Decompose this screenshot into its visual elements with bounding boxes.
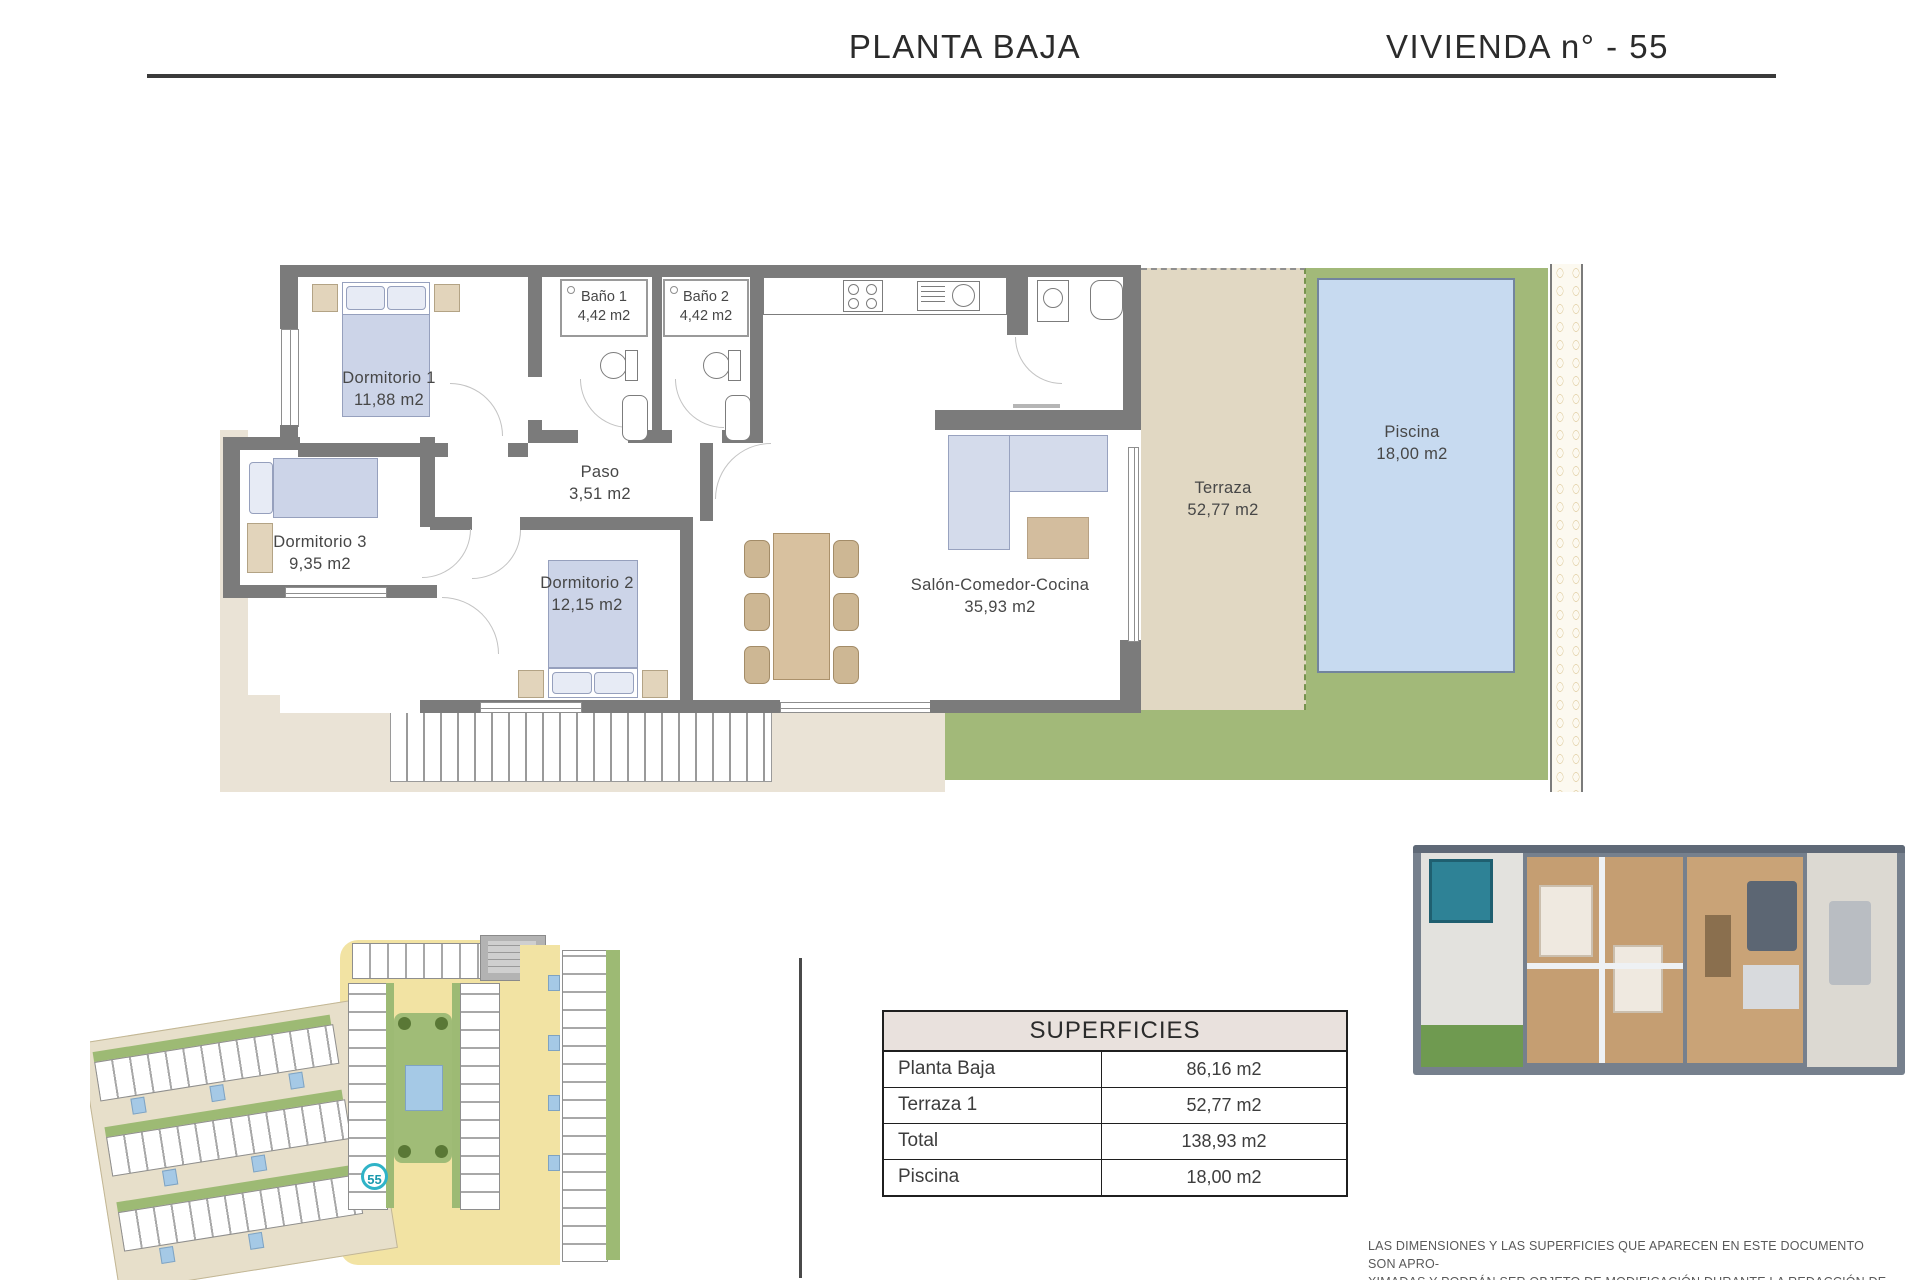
- room-name: Piscina: [1332, 422, 1492, 444]
- pillow: [346, 286, 385, 310]
- tree-icon: [435, 1017, 448, 1030]
- plan-sheet: PLANTA BAJA VIVIENDA n° - 55: [0, 0, 1920, 1280]
- pillow: [594, 672, 634, 694]
- row-label: Piscina: [884, 1160, 1102, 1195]
- chair: [744, 540, 770, 578]
- mini-pool: [548, 1155, 560, 1171]
- floor-plan: Dormitorio 1 11,88 m2 Baño 1 4,42 m2 Bañ…: [220, 257, 1585, 792]
- window-bedroom3: [285, 587, 387, 598]
- render-sofa: [1747, 881, 1797, 951]
- render-wall: [1599, 857, 1605, 1063]
- wall-bedroom2-top-b: [520, 517, 692, 530]
- sink-bowl-icon: [952, 284, 975, 307]
- tree-icon: [435, 1145, 448, 1158]
- burner-icon: [848, 298, 859, 309]
- disclaimer: LAS DIMENSIONES Y LAS SUPERFICIES QUE AP…: [1368, 1238, 1888, 1280]
- mini-pool: [548, 975, 560, 991]
- row-value: 18,00 m2: [1102, 1160, 1346, 1195]
- sliding-door-terrace: [1128, 447, 1139, 642]
- site-plan: 55: [90, 935, 805, 1280]
- housing-column: [562, 950, 608, 1262]
- toilet-icon: [600, 352, 627, 379]
- chair: [833, 646, 859, 684]
- chair: [744, 646, 770, 684]
- boiler-icon: [1090, 280, 1123, 320]
- sink-icon: [725, 395, 751, 441]
- burner-icon: [848, 284, 859, 295]
- vent-icon: [670, 286, 678, 294]
- mini-pool: [162, 1169, 178, 1187]
- pool-area: [1317, 278, 1515, 673]
- room-area: 18,00 m2: [1332, 444, 1492, 466]
- render-bed: [1539, 885, 1593, 957]
- wall-bedroom2-right: [680, 517, 693, 700]
- wall-exterior-top: [280, 265, 1141, 277]
- table-row: Terraza 1 52,77 m2: [884, 1088, 1346, 1124]
- chair: [833, 540, 859, 578]
- room-label-dormitorio2: Dormitorio 2 12,15 m2: [505, 573, 669, 617]
- row-value: 86,16 m2: [1102, 1052, 1346, 1087]
- pillow: [552, 672, 592, 694]
- room-name: Paso: [540, 462, 660, 484]
- mini-pool: [548, 1095, 560, 1111]
- render-bed: [1613, 945, 1663, 1013]
- room-area: 4,42 m2: [562, 307, 646, 326]
- garden-lawn: [945, 710, 1306, 780]
- housing-column: [460, 983, 500, 1210]
- room-area: 52,77 m2: [1150, 500, 1296, 522]
- drainer-lines: [921, 286, 945, 306]
- room-label-dormitorio3: Dormitorio 3 9,35 m2: [240, 532, 400, 576]
- section-divider: [799, 958, 802, 1278]
- toilet-tank-icon: [728, 350, 741, 381]
- room-label-dormitorio1: Dormitorio 1 11,88 m2: [309, 368, 469, 412]
- wall-bedroom1-bottom: [298, 443, 448, 457]
- sofa-l-leg: [948, 435, 1010, 550]
- shelf-line: [1013, 404, 1060, 408]
- room-label-paso: Paso 3,51 m2: [540, 462, 660, 506]
- surfaces-table: SUPERFICIES Planta Baja 86,16 m2 Terraza…: [882, 1010, 1348, 1197]
- mini-pool: [130, 1097, 146, 1115]
- render-dining-table: [1705, 915, 1731, 977]
- table-row: Planta Baja 86,16 m2: [884, 1052, 1346, 1088]
- pillow: [387, 286, 426, 310]
- row-label: Terraza 1: [884, 1088, 1102, 1123]
- unit-marker-55: 55: [361, 1163, 388, 1190]
- room-name: Terraza: [1150, 478, 1296, 500]
- nightstand: [642, 670, 668, 698]
- burner-icon: [866, 298, 877, 309]
- room-label-bano2: Baño 2 4,42 m2: [663, 279, 749, 337]
- mini-pool: [209, 1084, 225, 1102]
- garden-strip: [452, 983, 460, 1208]
- render-wall-top: [1413, 845, 1905, 853]
- wall-exterior-bottom-c: [930, 700, 1141, 713]
- room-label-salon: Salón-Comedor-Cocina 35,93 m2: [900, 575, 1100, 619]
- room-name: Dormitorio 2: [505, 573, 669, 595]
- page-title-right: VIVIENDA n° - 55: [1330, 28, 1725, 66]
- wall-exterior-bottom-b: [700, 700, 780, 713]
- rug: [1027, 517, 1089, 559]
- row-label: Total: [884, 1124, 1102, 1159]
- wall-bedroom3-left: [223, 437, 240, 598]
- pillow: [249, 462, 273, 514]
- nightstand: [434, 284, 460, 312]
- room-label-bano1: Baño 1 4,42 m2: [560, 279, 648, 337]
- render-wall: [1527, 963, 1683, 969]
- window-bedroom1: [281, 329, 299, 427]
- wall-bedroom1-bottom-stub: [508, 443, 528, 457]
- row-value: 52,77 m2: [1102, 1088, 1346, 1123]
- room-area: 4,42 m2: [665, 307, 747, 326]
- wall-bath1-left-upper: [528, 277, 542, 377]
- wall-exterior-right-upper: [1123, 277, 1141, 410]
- room-area: 9,35 m2: [240, 554, 400, 576]
- room-name: Dormitorio 3: [240, 532, 400, 554]
- wall-hall-right: [700, 443, 713, 521]
- mini-pool: [288, 1072, 304, 1090]
- gravel-strip: [1550, 264, 1583, 792]
- mini-pool: [248, 1232, 264, 1250]
- disclaimer-line: LAS DIMENSIONES Y LAS SUPERFICIES QUE AP…: [1368, 1238, 1888, 1274]
- render-pool: [1429, 859, 1493, 923]
- room-area: 12,15 m2: [505, 595, 669, 617]
- wall-bath2-right: [750, 277, 763, 443]
- mini-pool: [251, 1154, 267, 1172]
- render-rug: [1743, 965, 1799, 1009]
- surfaces-table-title: SUPERFICIES: [884, 1012, 1346, 1052]
- bed-single: [273, 458, 378, 518]
- room-area: 11,88 m2: [309, 390, 469, 412]
- wall-laundry-left: [1007, 277, 1028, 335]
- tree-icon: [398, 1145, 411, 1158]
- wall-exterior-right-lower: [1120, 640, 1141, 700]
- nightstand: [312, 284, 338, 312]
- room-name: Salón-Comedor-Cocina: [900, 575, 1100, 597]
- tree-icon: [398, 1017, 411, 1030]
- render-3d: [1413, 845, 1905, 1075]
- header-rule: [147, 74, 1776, 78]
- room-area: 35,93 m2: [900, 597, 1100, 619]
- entry-steps: [390, 712, 772, 782]
- mini-pool: [548, 1035, 560, 1051]
- room-area: 3,51 m2: [540, 484, 660, 506]
- vent-icon: [567, 286, 575, 294]
- render-lounge: [1829, 901, 1871, 985]
- chair: [744, 593, 770, 631]
- sliding-door-garden: [780, 702, 932, 713]
- central-garden: [394, 1013, 452, 1163]
- wall-laundry-bottom: [935, 410, 1141, 430]
- disclaimer-line: XIMADAS Y PODRÁN SER OBJETO DE MODIFICAC…: [1368, 1274, 1888, 1280]
- window-bedroom2: [480, 702, 582, 713]
- toilet-tank-icon: [625, 350, 638, 381]
- burner-icon: [866, 284, 877, 295]
- room-label-terraza: Terraza 52,77 m2: [1150, 478, 1296, 522]
- garden-strip: [606, 950, 620, 1260]
- table-row: Piscina 18,00 m2: [884, 1160, 1346, 1195]
- room-label-piscina: Piscina 18,00 m2: [1332, 422, 1492, 466]
- room-name: Dormitorio 1: [309, 368, 469, 390]
- wall-exterior-left-upper: [280, 277, 298, 329]
- wall-bath-bottom-a: [528, 430, 578, 443]
- washer-drum-icon: [1043, 288, 1063, 308]
- chair: [833, 593, 859, 631]
- toilet-icon: [703, 352, 730, 379]
- table-row: Total 138,93 m2: [884, 1124, 1346, 1160]
- dining-table: [773, 533, 830, 680]
- wall-bath-divider: [652, 277, 662, 443]
- render-grass: [1421, 1025, 1523, 1067]
- community-pool: [405, 1065, 443, 1111]
- row-value: 138,93 m2: [1102, 1124, 1346, 1159]
- row-label: Planta Baja: [884, 1052, 1102, 1087]
- page-title-left: PLANTA BAJA: [750, 28, 1180, 66]
- mini-pool: [159, 1246, 175, 1264]
- nightstand: [518, 670, 544, 698]
- sink-icon: [622, 395, 648, 441]
